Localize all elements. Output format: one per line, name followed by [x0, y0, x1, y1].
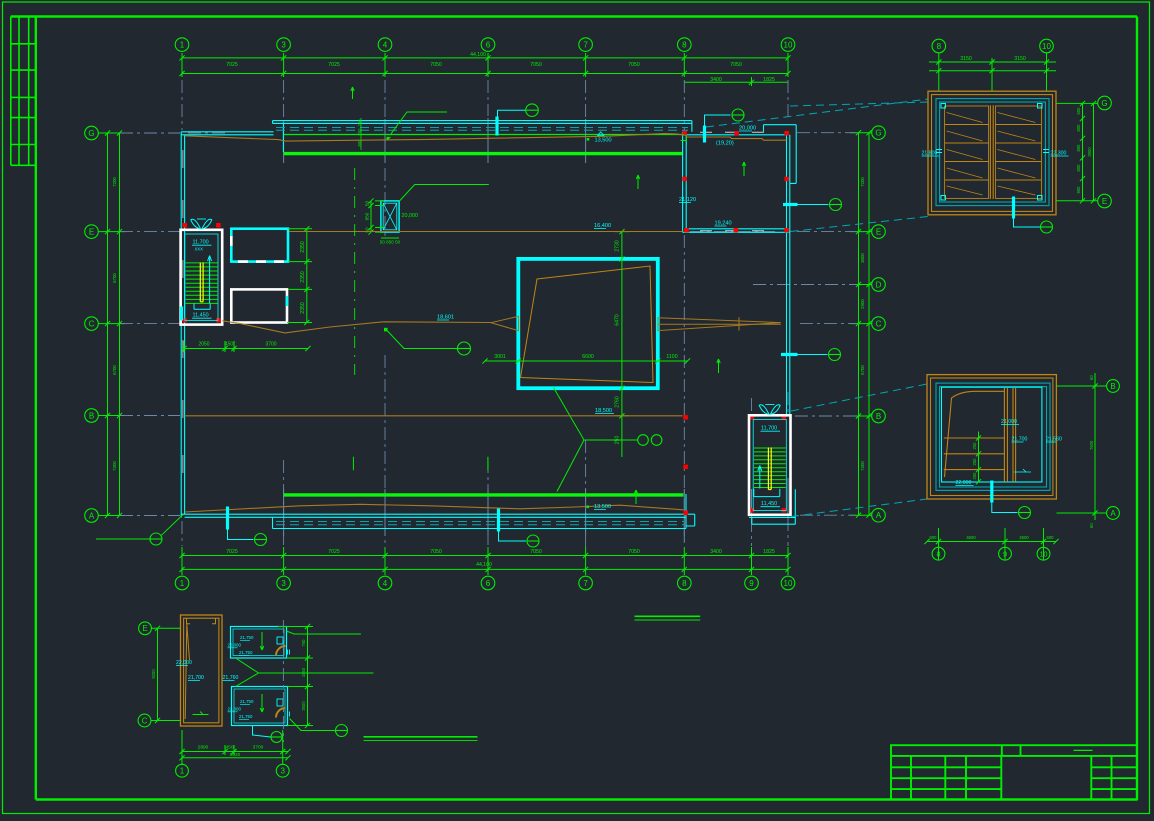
svg-text:2350: 2350: [300, 302, 306, 314]
svg-text:3700: 3700: [265, 342, 276, 348]
svg-text:7600: 7600: [1089, 440, 1094, 450]
svg-text:8: 8: [682, 40, 687, 49]
svg-text:16,400: 16,400: [594, 223, 611, 229]
svg-text:7050: 7050: [628, 62, 640, 68]
svg-text:21,760: 21,760: [223, 675, 239, 681]
svg-text:11,700: 11,700: [193, 240, 209, 246]
svg-text:21,750: 21,750: [240, 635, 254, 640]
svg-text:450: 450: [225, 342, 234, 348]
svg-text:600: 600: [1076, 107, 1081, 115]
svg-text:XXX: XXX: [195, 247, 204, 252]
svg-text:7: 7: [583, 579, 588, 588]
svg-text:7200: 7200: [860, 177, 865, 187]
svg-text:60: 60: [1089, 523, 1094, 528]
svg-text:B: B: [876, 412, 881, 421]
svg-text:2600: 2600: [301, 701, 306, 711]
svg-text:7050: 7050: [430, 62, 442, 68]
svg-text:4: 4: [383, 579, 388, 588]
svg-text:7050: 7050: [628, 549, 640, 555]
svg-text:3: 3: [280, 767, 285, 776]
svg-text:9200: 9200: [151, 669, 156, 679]
svg-text:11,700: 11,700: [761, 426, 777, 432]
svg-text:900: 900: [1076, 186, 1081, 194]
svg-text:11,450: 11,450: [193, 313, 209, 319]
svg-text:G: G: [1101, 99, 1107, 108]
svg-text:7200: 7200: [112, 177, 117, 187]
svg-text:G: G: [88, 129, 94, 138]
svg-text:1: 1: [180, 767, 185, 776]
svg-text:6700: 6700: [860, 365, 865, 375]
svg-text:3150: 3150: [1014, 56, 1026, 62]
svg-text:D: D: [876, 280, 882, 289]
svg-text:11,450: 11,450: [761, 501, 777, 507]
svg-text:13,500: 13,500: [595, 138, 612, 144]
svg-text:2730: 2730: [615, 240, 621, 252]
svg-text:21,560: 21,560: [1046, 437, 1062, 443]
svg-text:E: E: [89, 227, 94, 236]
svg-text:1825: 1825: [763, 77, 775, 83]
svg-text:600: 600: [930, 535, 938, 540]
svg-text:7025: 7025: [226, 62, 238, 68]
svg-text:18,500: 18,500: [595, 408, 612, 414]
svg-text:3400: 3400: [710, 549, 722, 555]
svg-text:800: 800: [1076, 164, 1081, 172]
svg-text:800: 800: [1076, 124, 1081, 132]
svg-text:2350: 2350: [300, 241, 306, 253]
svg-text:A: A: [89, 511, 95, 520]
svg-text:10: 10: [784, 579, 793, 588]
svg-text:2760: 2760: [615, 396, 621, 408]
svg-text:1825: 1825: [763, 549, 775, 555]
svg-text:3900: 3900: [1087, 147, 1092, 157]
svg-text:A: A: [876, 511, 882, 520]
svg-text:750: 750: [301, 639, 306, 647]
svg-text:6: 6: [486, 579, 491, 588]
svg-text:22,000: 22,000: [176, 660, 192, 666]
svg-text:21,700: 21,700: [1012, 437, 1028, 443]
svg-text:6600: 6600: [582, 354, 594, 360]
svg-text:21,700: 21,700: [188, 675, 204, 681]
svg-text:7050: 7050: [430, 549, 442, 555]
svg-text:E: E: [142, 624, 147, 633]
svg-text:3: 3: [281, 40, 286, 49]
svg-text:E: E: [1102, 197, 1107, 206]
svg-text:1: 1: [180, 40, 185, 49]
svg-text:10: 10: [1040, 549, 1048, 558]
svg-text:21,800: 21,800: [922, 151, 938, 157]
svg-text:2350: 2350: [300, 271, 306, 283]
svg-text:6700: 6700: [112, 365, 117, 375]
svg-text:G: G: [875, 129, 881, 138]
svg-text:21,750: 21,750: [240, 699, 254, 704]
svg-text:60: 60: [1089, 375, 1094, 380]
svg-text:18,601: 18,601: [437, 315, 454, 321]
svg-text:850: 850: [365, 212, 370, 220]
svg-text:7: 7: [583, 40, 588, 49]
svg-text:3700: 3700: [253, 745, 264, 751]
svg-text:22,000: 22,000: [228, 643, 242, 648]
svg-text:7300: 7300: [860, 461, 865, 471]
svg-text:3: 3: [281, 579, 286, 588]
svg-text:7300: 7300: [112, 461, 117, 471]
svg-text:450: 450: [225, 745, 233, 751]
svg-text:20,000: 20,000: [402, 213, 419, 219]
svg-text:21,120: 21,120: [679, 197, 696, 203]
svg-text:600: 600: [1047, 535, 1055, 540]
svg-text:250: 250: [972, 472, 977, 480]
svg-text:E: E: [876, 227, 881, 236]
svg-text:A: A: [1110, 509, 1116, 518]
svg-text:7050: 7050: [530, 549, 542, 555]
svg-text:250: 250: [972, 442, 977, 450]
svg-text:B: B: [89, 411, 94, 420]
svg-text:7050: 7050: [730, 62, 742, 68]
svg-text:7025: 7025: [328, 62, 340, 68]
svg-text:C: C: [876, 319, 882, 328]
svg-text:22,300: 22,300: [1051, 151, 1067, 157]
svg-text:44,100: 44,100: [470, 52, 486, 58]
svg-text:3001: 3001: [494, 354, 506, 360]
svg-text:10: 10: [1042, 42, 1051, 51]
svg-text:C: C: [142, 716, 148, 725]
svg-text:44,100: 44,100: [476, 562, 492, 568]
svg-text:(19,20): (19,20): [716, 141, 734, 147]
svg-text:C: C: [89, 319, 95, 328]
svg-text:21,750: 21,750: [239, 650, 253, 655]
svg-text:7025: 7025: [328, 549, 340, 555]
svg-text:2890: 2890: [198, 745, 209, 751]
svg-text:1100: 1100: [666, 354, 677, 360]
svg-text:B: B: [1110, 382, 1115, 391]
svg-text:13,500: 13,500: [594, 504, 611, 510]
svg-text:8020: 8020: [230, 752, 241, 758]
svg-text:250: 250: [972, 458, 977, 466]
svg-text:7050: 7050: [530, 62, 542, 68]
svg-text:8: 8: [682, 579, 687, 588]
svg-text:6700: 6700: [112, 273, 117, 283]
svg-text:4: 4: [383, 40, 388, 49]
svg-text:2050: 2050: [198, 342, 209, 348]
svg-text:7025: 7025: [226, 549, 238, 555]
svg-text:22,000: 22,000: [228, 707, 242, 712]
svg-text:800: 800: [1076, 144, 1081, 152]
svg-text:21,000: 21,000: [1001, 419, 1017, 425]
svg-text:1550: 1550: [301, 667, 306, 677]
svg-text:6: 6: [486, 40, 491, 49]
svg-text:9: 9: [749, 579, 754, 588]
svg-text:3800: 3800: [860, 253, 865, 263]
svg-text:2900: 2900: [860, 299, 865, 309]
svg-text:22,000: 22,000: [956, 480, 972, 486]
svg-text:8: 8: [937, 549, 941, 558]
svg-text:6470: 6470: [615, 314, 621, 326]
svg-text:3400: 3400: [710, 77, 722, 83]
svg-text:1: 1: [180, 579, 185, 588]
svg-text:10: 10: [784, 40, 793, 49]
svg-text:19,240: 19,240: [715, 221, 732, 227]
svg-text:2600: 2600: [1019, 535, 1029, 540]
svg-text:8: 8: [937, 42, 942, 51]
svg-text:3150: 3150: [960, 56, 972, 62]
svg-text:50 850 50: 50 850 50: [380, 240, 401, 245]
svg-text:21,750: 21,750: [239, 714, 253, 719]
svg-text:9: 9: [1003, 549, 1007, 558]
svg-text:4600: 4600: [966, 535, 976, 540]
svg-text:50: 50: [365, 201, 370, 207]
svg-text:20,000: 20,000: [739, 126, 756, 132]
